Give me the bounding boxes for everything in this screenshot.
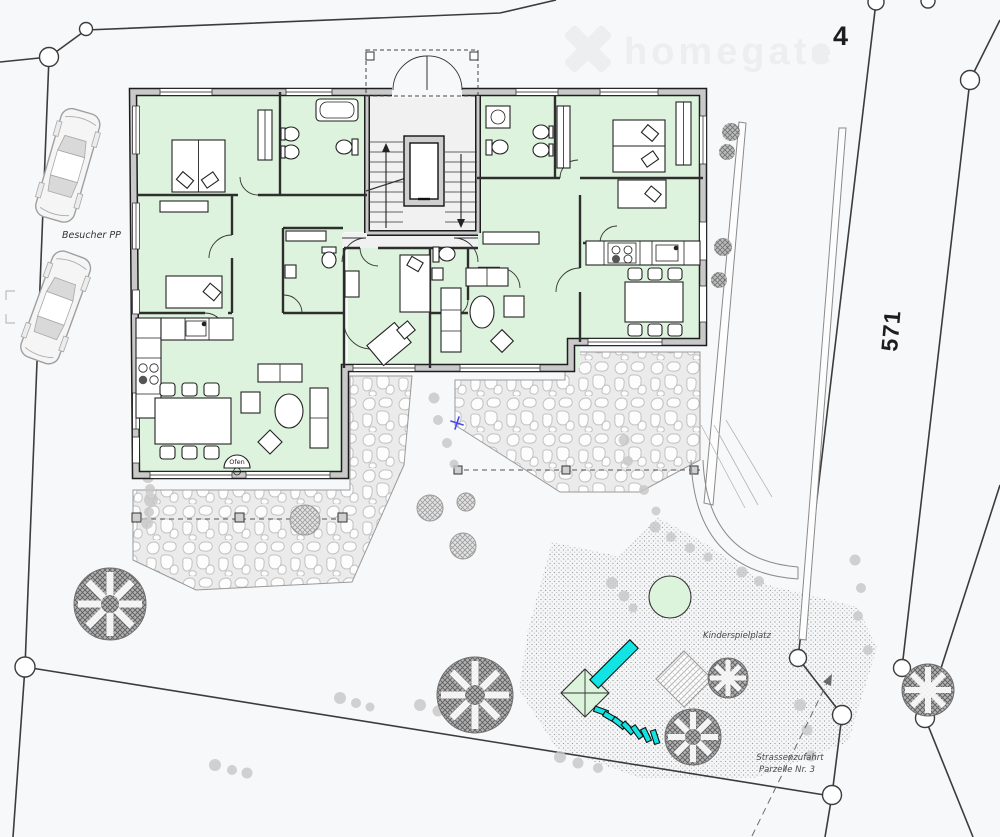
site-plan-drawing: homegate [0,0,1000,837]
tree [74,568,146,640]
watermark-mark [812,46,828,62]
visitor-parking-label: Besucher PP [62,230,121,241]
tree [437,657,513,733]
playground-label: Kinderspielplatz [703,631,772,641]
tree [902,664,954,716]
oven-label: Ofen [229,458,245,466]
street-access-label-2: Parzelle Nr. 3 [759,765,815,775]
site-plan-page: homegate [0,0,1000,837]
sandbox-circle [649,576,691,618]
tree [665,709,721,765]
parcel-number-4: 4 [833,21,848,51]
watermark-text: homegate [624,31,835,73]
parcel-number-571: 571 [876,309,906,352]
elevator [404,136,444,206]
tree [708,658,748,698]
